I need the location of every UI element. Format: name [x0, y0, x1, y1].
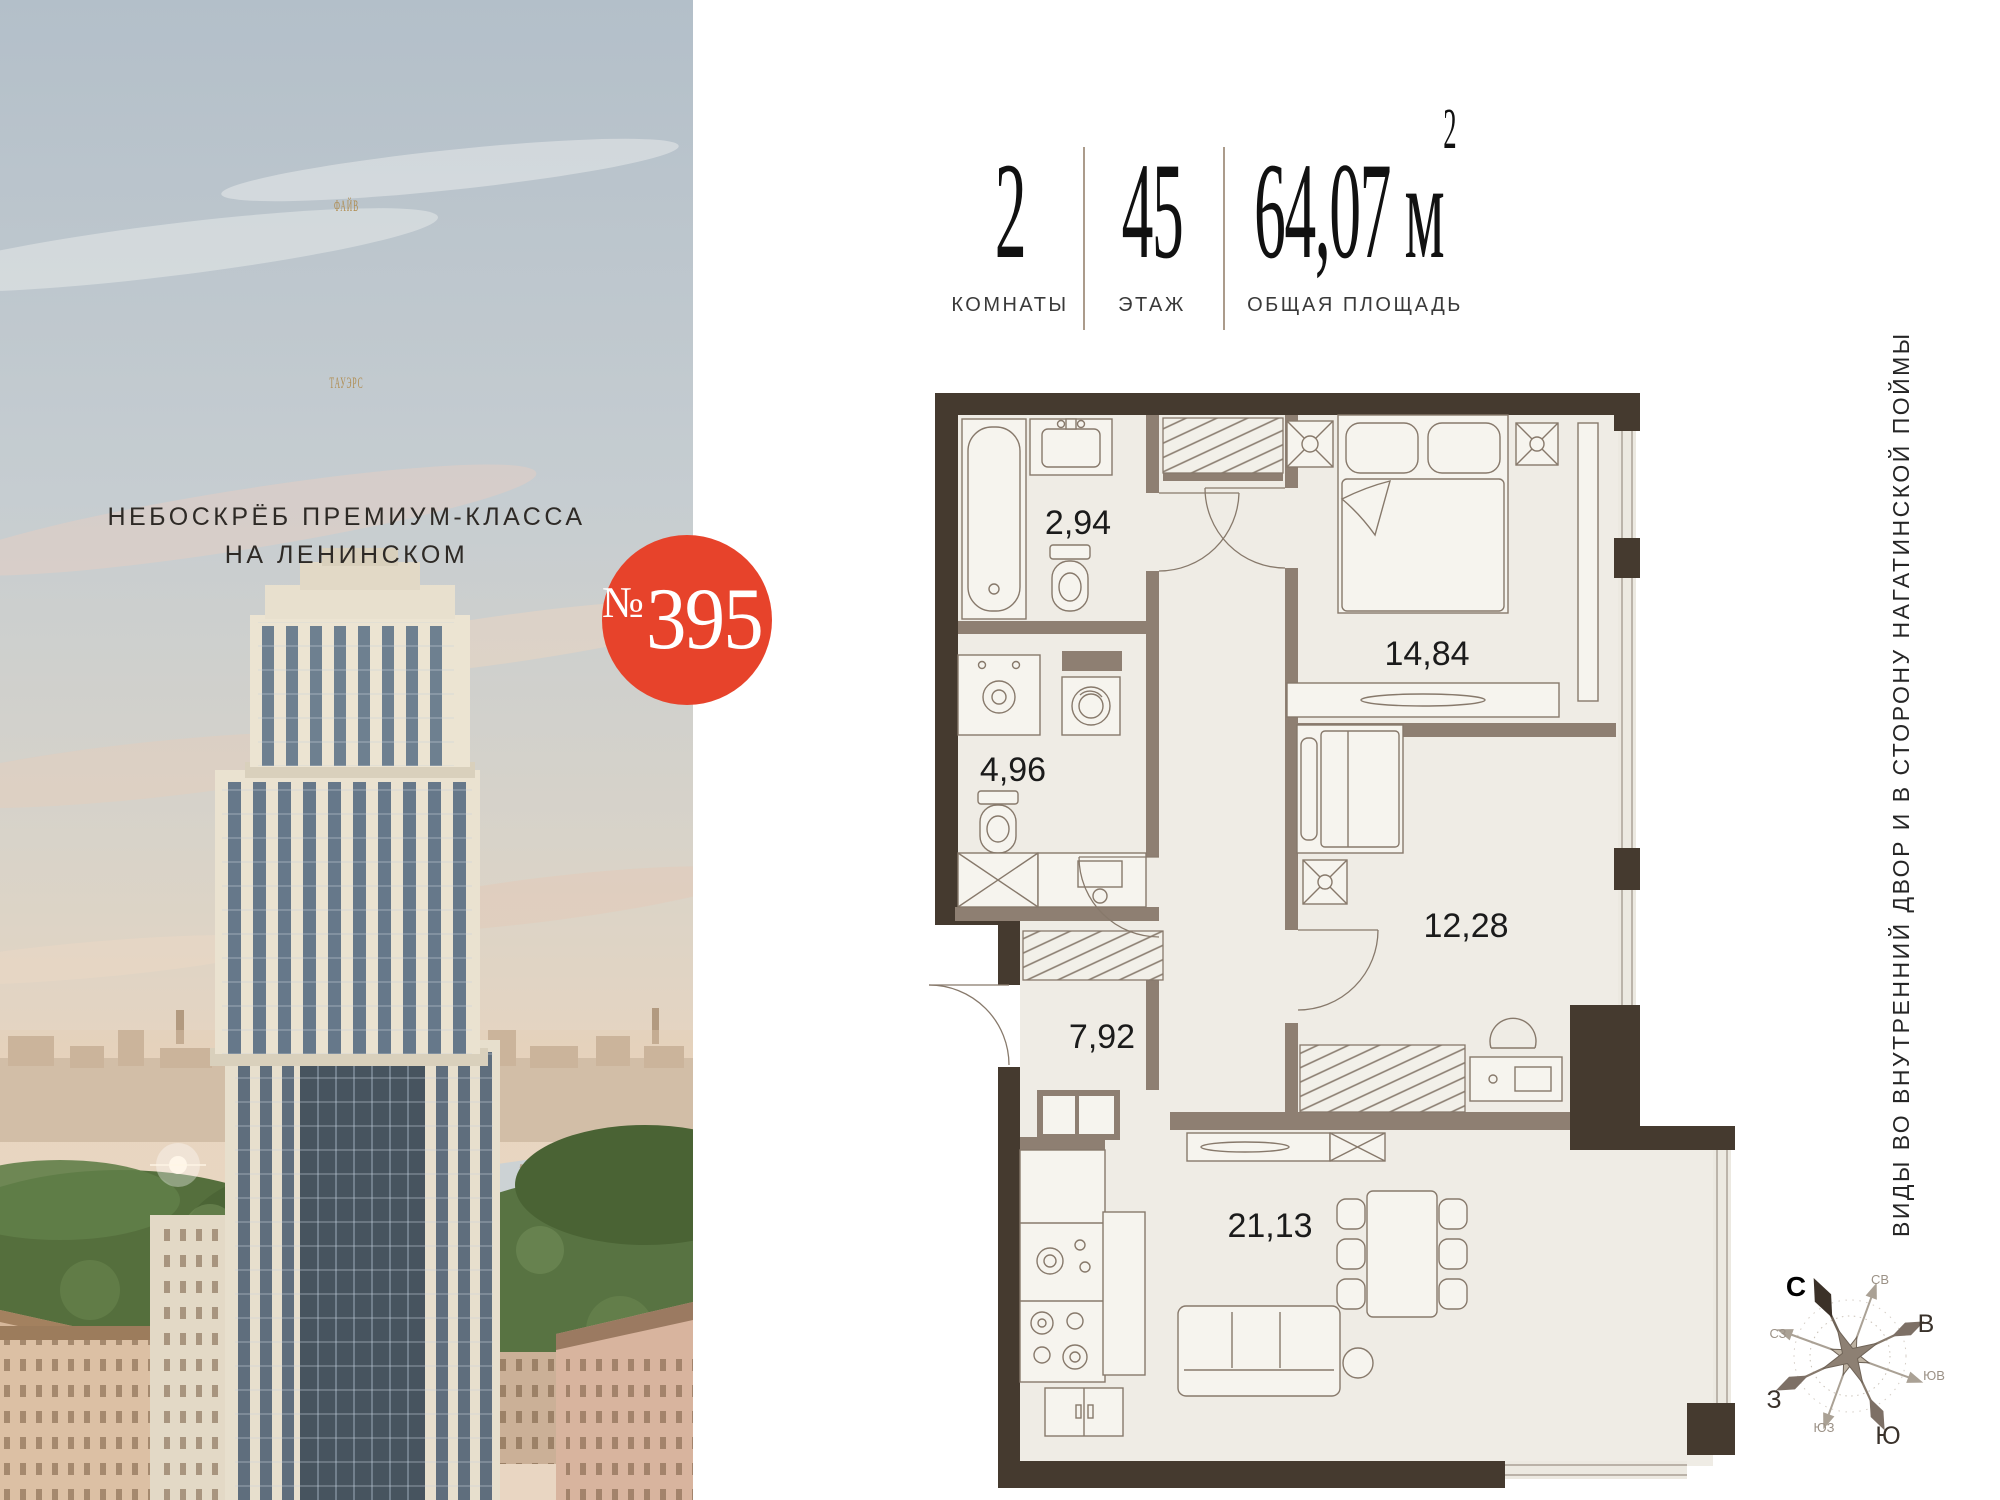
toilet-2	[978, 791, 1018, 853]
kitchen-base-cabinet	[1045, 1388, 1123, 1436]
toilet-1	[1050, 545, 1090, 611]
brand-title-line1: ФАЙВ	[334, 198, 359, 215]
kitchen-counter	[1020, 1150, 1105, 1382]
compass-label-northwest: СЗ	[1769, 1326, 1786, 1341]
floor-plan: 2,94 4,96 7,92 14,84 12,28 21,13	[885, 393, 1760, 1500]
area-label: ОБЩАЯ ПЛОЩАДЬ	[1225, 294, 1485, 317]
compass-label-south: Ю	[1875, 1422, 1900, 1450]
compass-label-southwest: ЮЗ	[1814, 1420, 1835, 1435]
compass-label-north: С	[1786, 1271, 1806, 1302]
side-table	[1343, 1348, 1373, 1378]
brochure-page: ФАЙВ ТАУЭРС НЕБОСКРЁБ ПРЕМИУМ-КЛАССА НА …	[0, 0, 2000, 1500]
number-sign: №	[602, 577, 644, 628]
sofa	[1178, 1306, 1340, 1396]
floor-value: 45	[1122, 142, 1183, 280]
apartment-number-badge: № 395	[602, 535, 772, 705]
view-note: ВИДЫ ВО ВНУТРЕННИЙ ДВОР И В СТОРОНУ НАГА…	[1888, 355, 1930, 1237]
living-cabinet-x	[1330, 1133, 1385, 1161]
bathtub	[962, 419, 1026, 619]
room-area-bedroom-1: 14,84	[1384, 635, 1469, 673]
hero-photo: ФАЙВ ТАУЭРС НЕБОСКРЁБ ПРЕМИУМ-КЛАССА НА …	[0, 0, 693, 1500]
compass-label-northeast: СВ	[1871, 1272, 1889, 1287]
stat-floor: 45 ЭТАЖ	[1072, 130, 1232, 317]
brand-subtitle-line1: НЕБОСКРЁБ ПРЕМИУМ-КЛАССА	[0, 498, 693, 536]
dining-set	[1337, 1191, 1467, 1317]
sink-1	[1030, 419, 1112, 475]
brand-title: ФАЙВ ТАУЭРС	[184, 118, 510, 472]
compass-star	[1823, 1329, 1877, 1383]
ceiling-light-2	[1516, 423, 1558, 465]
compass-label-west: З	[1766, 1386, 1781, 1414]
kitchen-island	[1103, 1212, 1145, 1375]
brand-block: ФАЙВ ТАУЭРС НЕБОСКРЁБ ПРЕМИУМ-КЛАССА НА …	[0, 118, 693, 574]
compass-label-southeast: ЮВ	[1923, 1368, 1945, 1383]
room-area-hallway: 7,92	[1069, 1018, 1135, 1056]
vanity-desk	[1470, 1057, 1562, 1101]
double-bed	[1338, 415, 1508, 613]
brand-title-line2: ТАУЭРС	[329, 375, 363, 392]
tv-console	[1187, 1133, 1330, 1161]
room-area-bathroom: 2,94	[1045, 504, 1111, 542]
brand-subtitle: НЕБОСКРЁБ ПРЕМИУМ-КЛАССА НА ЛЕНИНСКОМ	[0, 498, 693, 574]
room-area-bedroom-2: 12,28	[1423, 907, 1508, 945]
door-entry	[929, 985, 1009, 1065]
rooms-value: 2	[995, 142, 1025, 280]
stat-rooms: 2 КОМНАТЫ	[930, 130, 1090, 317]
compass-label-east: В	[1918, 1310, 1935, 1338]
room-area-washroom: 4,96	[980, 751, 1046, 789]
room-area-living-kitchen: 21,13	[1227, 1207, 1312, 1245]
stat-area: 64,07 м2 ОБЩАЯ ПЛОЩАДЬ	[1225, 130, 1485, 317]
washing-machine	[1062, 677, 1120, 735]
ceiling-light-3	[1303, 860, 1347, 904]
floor-label: ЭТАЖ	[1072, 294, 1232, 317]
cabinet-x	[958, 853, 1038, 907]
brand-subtitle-line2: НА ЛЕНИНСКОМ	[0, 536, 693, 574]
single-bed	[1297, 725, 1403, 853]
sink-2	[958, 655, 1040, 735]
area-sup: 2	[1444, 96, 1456, 161]
area-value: 64,07 м2	[1254, 142, 1455, 280]
apartment-number: 395	[646, 576, 762, 664]
dresser	[1287, 683, 1559, 717]
rooms-label: КОМНАТЫ	[930, 294, 1090, 317]
window-reveal	[1578, 423, 1598, 701]
washroom-counter	[1038, 853, 1146, 907]
compass-rose: С В З Ю СВ СЗ ЮВ ЮЗ	[1738, 1258, 1988, 1498]
ceiling-light-1	[1287, 421, 1333, 467]
